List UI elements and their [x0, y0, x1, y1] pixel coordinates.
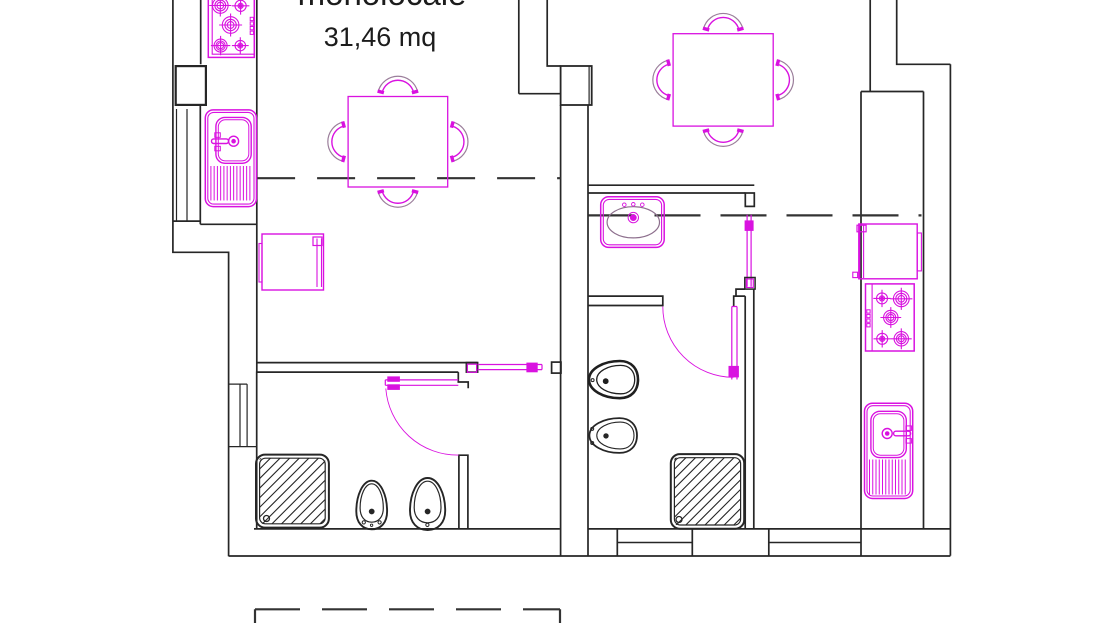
svg-text:31,46 mq: 31,46 mq — [324, 22, 437, 52]
svg-text:monolocale: monolocale — [298, 0, 467, 12]
